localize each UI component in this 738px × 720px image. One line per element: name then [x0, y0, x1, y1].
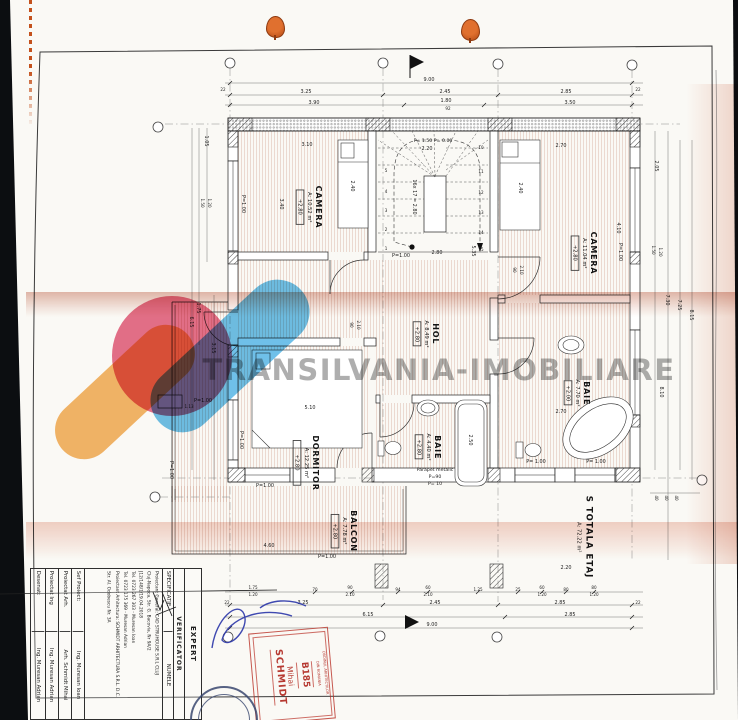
dim-label: 3.25	[301, 89, 312, 95]
dim-label: 60	[539, 586, 544, 591]
room-area: A: 7.78 m²	[341, 513, 347, 549]
stair-step-number: 10	[478, 146, 483, 151]
dim-label: 1.75	[195, 303, 201, 314]
parapet-note: P= 10	[428, 481, 442, 486]
room-label-camera-left: CAMERA A: 10.52 m² +2.80	[295, 186, 323, 229]
dim-label: 1.20	[589, 593, 598, 598]
proiectant-line: Tel. 0723 267 303 - Muresan Ioan	[128, 571, 136, 697]
dim-label: 22	[635, 601, 640, 606]
dim-label: 5.35	[470, 246, 476, 257]
verification-checkmark	[148, 585, 188, 630]
dim-label: 90	[512, 267, 517, 272]
dim-label: 1.20	[207, 198, 212, 207]
dim-label: 3.10	[302, 142, 313, 148]
room-name: CAMERA	[314, 186, 323, 229]
parapet-height-label: P=1.00	[168, 461, 174, 479]
role-label: Sef Proiect:	[73, 569, 84, 632]
dim-label: 2.45	[430, 600, 441, 606]
role-label: Proiectat Arh.	[60, 569, 71, 632]
proiectant-line: J12/148/1/19.04.2018	[136, 571, 144, 697]
stair-step-number: 2	[385, 228, 388, 233]
stair-step-number: 4	[385, 190, 388, 195]
dim-label: 3.50	[565, 100, 576, 106]
room-label-baie-small: BAIE A: 4.40 m² +2.80	[414, 431, 442, 462]
room-area: A: 8.49 m²	[423, 320, 429, 347]
parapet-height-label: P= 1.00	[526, 459, 546, 465]
parapet-height-label: P=1.00	[240, 195, 246, 213]
room-name: BAIE	[433, 431, 442, 462]
dim-label: 22	[635, 88, 640, 93]
person-name: Ing. Muresan Adrian	[32, 639, 44, 711]
stair-formula: 16x 17 = 2.80	[411, 179, 417, 214]
stair-step-number: 13	[478, 211, 483, 216]
dim-label: 80	[591, 586, 596, 591]
dim-label: 2.85	[561, 89, 572, 95]
room-name: DORMITOR	[311, 435, 320, 490]
stair-step-number: 15	[478, 248, 483, 253]
dim-label: 8.15	[688, 310, 694, 321]
proiectant-line: Str. Al. Odobescu Nr. 3A	[104, 571, 112, 697]
room-area: A: 10.52 m²	[306, 189, 312, 226]
role-label: Desenat:	[32, 569, 44, 632]
stair-parapet-label: P= 1.50 P= 0.00	[414, 138, 453, 143]
title-block-row-proiectat-arh: Proiectat Arh. Arh. Schmidt Mihai	[58, 569, 71, 719]
room-level-badge: +2.80	[296, 190, 305, 225]
stair-step-number: 14	[478, 231, 483, 236]
dim-label: 2.40	[517, 183, 523, 194]
parapet-height-label: P= 1.00	[586, 459, 606, 465]
dim-label: 2.10	[345, 593, 354, 598]
dim-label: 3.15	[210, 343, 216, 354]
person-name: Ing. Muresan Ioan	[73, 639, 84, 711]
room-level-badge: +2.80	[571, 236, 580, 271]
parapet-note: Parapet metalic	[417, 467, 454, 472]
dim-label: 2.80	[432, 250, 443, 256]
stamp-organization: ORDINUL ARHITECTILOR	[321, 651, 329, 695]
room-label-balcon: BALCON A: 7.78 m² +2.80	[330, 510, 358, 552]
proiectant-line: Tel. 0723 175 369 - Muresan Adrian	[120, 571, 128, 697]
dim-label: 2.20	[561, 565, 572, 571]
ink-signature	[195, 580, 335, 655]
room-name: BALCON	[349, 510, 358, 552]
stair-step-number: 1	[385, 247, 388, 252]
dim-label: 1.80	[441, 98, 452, 104]
proiectant-line: Proiectant Arhitectura: SCHMIDT ARHITECT…	[112, 571, 120, 697]
dim-label: 4.60	[264, 543, 275, 549]
dim-label: 25	[515, 588, 520, 593]
parapet-note: P=90	[429, 474, 442, 479]
dim-label: 94	[395, 588, 400, 593]
person-name: Ing. Muresan Adrian	[46, 639, 57, 711]
dim-label: 1.25	[473, 588, 482, 593]
room-area: A: 12.25 m²	[303, 439, 309, 487]
stair-step-number: 11	[478, 170, 483, 175]
dim-label: 2.85	[565, 612, 576, 618]
room-level-badge: +2.80	[413, 321, 422, 346]
dim-label: 1.50	[200, 198, 205, 207]
parapet-height-label: P=1.00	[194, 398, 212, 404]
dim-label: 6.15	[363, 612, 374, 618]
dim-label: 2.70	[556, 143, 567, 149]
dim-label: 1.50	[651, 245, 656, 254]
dim-label: 2.10	[356, 320, 361, 329]
room-level-badge: +2.80	[293, 440, 302, 486]
room-level-badge: +2.80	[331, 514, 340, 548]
orange-dashed-margin-line	[29, 0, 32, 128]
dim-label: 3.90	[309, 100, 320, 106]
parapet-height-label: P=1.00	[392, 253, 410, 259]
title-block-row-desenat: Desenat: Ing. Muresan Adrian	[31, 569, 45, 719]
stair-step-number: 12	[478, 191, 483, 196]
dim-label: 2.10	[423, 593, 432, 598]
dim-label: 1.05	[203, 136, 209, 147]
parapet-height-label: P=1.00	[617, 243, 623, 261]
room-area: A: 72.22 m²	[576, 502, 582, 573]
room-name: S TOTALA ETAJ	[584, 496, 594, 578]
stamp-last-name: SCHMIDT	[270, 649, 289, 706]
scanned-floor-plan-page: CAMERA A: 10.52 m² +2.80 CAMERA A: 11.04…	[0, 0, 738, 720]
stamp-number: B185	[296, 661, 314, 688]
dim-label: 9.00	[427, 622, 438, 628]
person-name: Arh. Schmidt Mihai	[60, 639, 71, 711]
dim-label: 90	[347, 586, 352, 591]
dim-label: 22	[220, 88, 225, 93]
room-label-camera-right: CAMERA A: 11.04 m² +2.80	[570, 232, 598, 275]
stair-step-number: 3	[385, 209, 388, 214]
dim-label: 7.30	[664, 295, 670, 306]
numele-header: NUMELE	[163, 639, 172, 711]
dim-label: 2.05	[653, 161, 659, 172]
title-block-row-proiectat-ing: Proiectat Ing Ing. Muresan Adrian	[45, 569, 59, 719]
room-name: CAMERA	[589, 232, 598, 275]
ink-blot-left	[266, 16, 285, 38]
dim-label: 5.10	[305, 405, 316, 411]
dim-label: 4.10	[615, 223, 621, 234]
stamp-organization: DIN ROMANIA	[315, 661, 321, 686]
dim-label: 80	[563, 588, 568, 593]
stair-step-number: 5	[385, 169, 388, 174]
parapet-height-label: P=1.00	[256, 483, 274, 489]
dim-label: 1.20	[537, 593, 546, 598]
room-area: A: 11.04 m²	[581, 235, 587, 272]
parapet-height-label: P=1.00	[318, 554, 336, 560]
parapet-height-label: P=1.00	[238, 431, 244, 449]
watermark-text: TRANSILVANIA-IMOBILIARE	[200, 353, 678, 387]
stamp-first-name: Mihai	[285, 666, 296, 687]
dim-label: 9.00	[424, 77, 435, 83]
dim-label: 60	[425, 586, 430, 591]
dim-label: 40	[664, 495, 669, 500]
dim-label: 40	[674, 495, 679, 500]
dim-label: 92	[445, 107, 450, 112]
dim-label: 2.40	[349, 181, 355, 192]
dim-label: 2.70	[556, 409, 567, 415]
dim-label: 2.50	[467, 435, 473, 446]
dim-label: 1.20	[658, 247, 663, 256]
dim-label: 2.45	[440, 89, 451, 95]
dim-label: 3.40	[278, 199, 284, 210]
dim-label: 40	[654, 495, 659, 500]
room-label-total-floor: S TOTALA ETAJ A: 72.22 m²	[575, 496, 594, 578]
room-level-badge: +2.80	[415, 434, 424, 459]
dim-label: 7.25	[676, 300, 682, 311]
ink-blot-right	[461, 19, 480, 41]
dim-label: 90	[349, 322, 354, 327]
room-label-dormitor: DORMITOR A: 12.25 m² +2.80	[292, 435, 320, 490]
role-label: Proiectat Ing	[46, 569, 57, 632]
dim-label: 8.10	[658, 387, 664, 398]
dim-label: 1.13	[184, 405, 193, 410]
room-area: A: 4.40 m²	[425, 433, 431, 460]
room-name: HOL	[431, 318, 440, 349]
dim-label: 2.85	[555, 600, 566, 606]
room-label-hol: HOL A: 8.49 m² +2.80	[412, 318, 440, 349]
dim-label: 6.15	[188, 317, 194, 328]
dim-label: 2.10	[519, 265, 524, 274]
dim-label: 2.20	[422, 146, 433, 152]
title-block-row-sef-proiect: Sef Proiect: Ing. Muresan Ioan	[71, 569, 84, 719]
